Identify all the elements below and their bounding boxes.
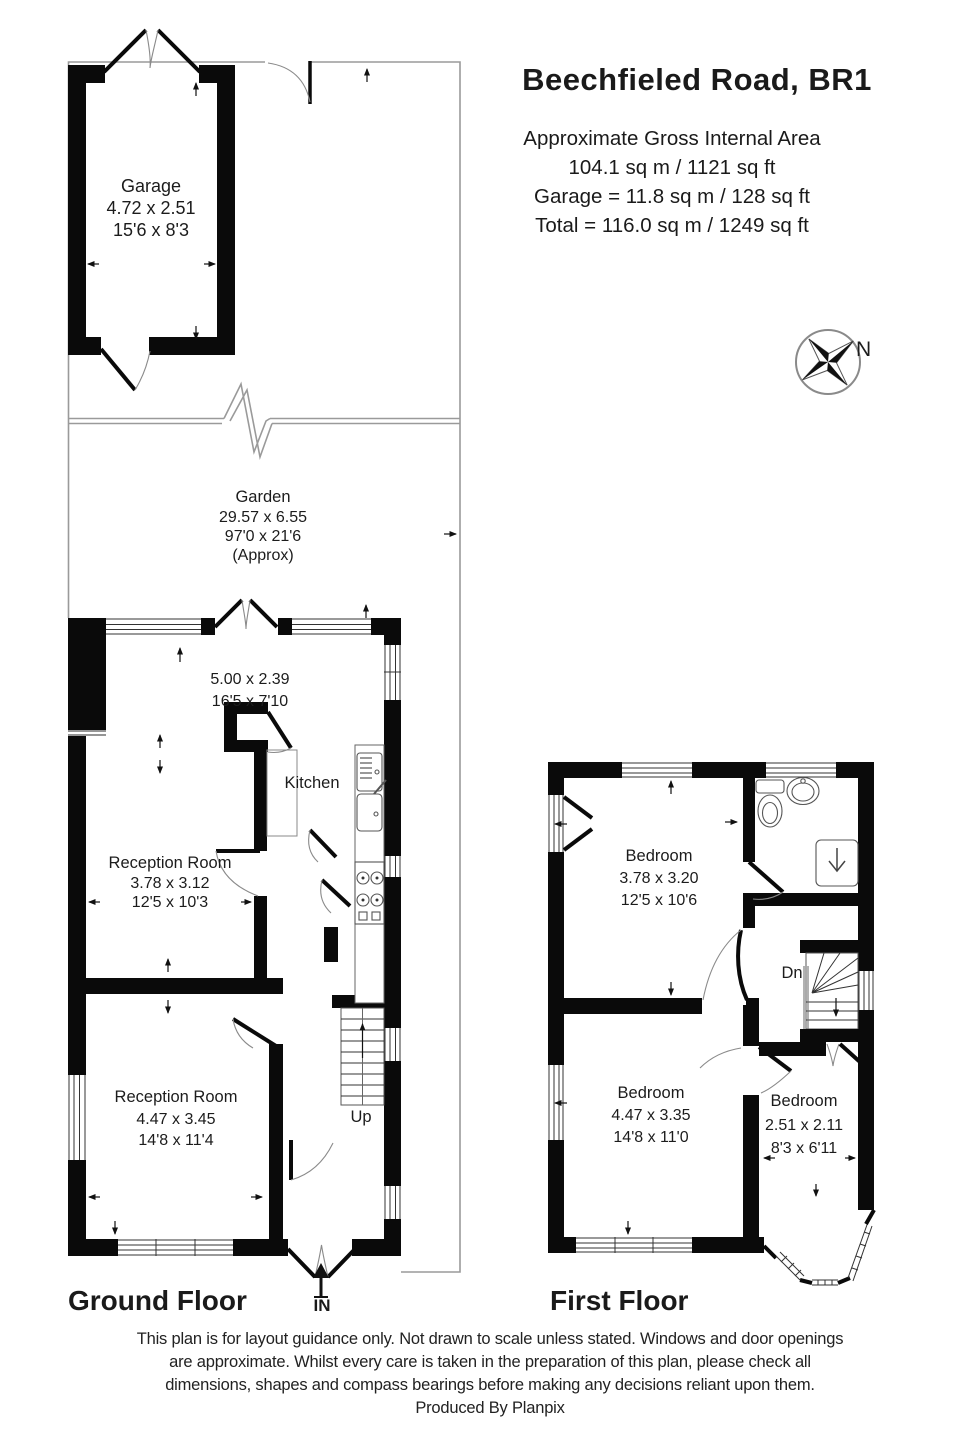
bedroom3-label: Bedroom: [771, 1092, 838, 1110]
disclaimer: This plan is for layout guidance only. N…: [0, 1328, 980, 1420]
rear-window-right: [292, 618, 371, 635]
toilet: [756, 780, 784, 827]
garage-door: [104, 30, 200, 72]
compass: N: [796, 330, 871, 394]
bedroom3-bay-window: [764, 1210, 874, 1285]
garden-label: Garden: [235, 488, 290, 506]
shower: [816, 840, 858, 886]
reception2-dim-imperial: 14'8 x 11'4: [138, 1132, 213, 1149]
garden-break-line: [68, 384, 460, 457]
patio-doors: [215, 600, 277, 629]
bedroom2-front-window: [576, 1237, 692, 1253]
compass-north-label: N: [856, 338, 871, 361]
bedroom1-side-window: [548, 795, 592, 852]
kitchen-lobby-door: [309, 830, 336, 862]
kitchen-hob: [355, 862, 384, 924]
garden-gate: [268, 61, 310, 104]
entrance-in-arrow: [313, 1263, 329, 1297]
basin: [787, 778, 819, 805]
kitchen-unit: [267, 750, 297, 836]
entrance-in-label: IN: [306, 1296, 338, 1316]
bedroom3-dim-imperial: 8'3 x 6'11: [771, 1140, 837, 1157]
bedroom3-corner-window: [826, 1042, 860, 1066]
kitchen-side-window: [384, 645, 401, 700]
area-line: Approximate Gross Internal Area: [412, 124, 932, 153]
reception2-side-window: [68, 1075, 86, 1160]
hall-side-window-upper: [384, 1028, 401, 1061]
lobby-door: [321, 880, 350, 913]
area-line: Total = 116.0 sq m / 1249 sq ft: [412, 211, 932, 240]
ground-floor-label: Ground Floor: [68, 1285, 247, 1317]
rear-window-left: [106, 618, 201, 635]
bedroom3-dim-metric: 2.51 x 2.11: [765, 1117, 843, 1134]
bedroom2-door: [700, 1048, 741, 1068]
stairs-up-label: Up: [350, 1108, 371, 1126]
garden-approx-note: (Approx): [232, 547, 293, 564]
garden-dim-metric: 29.57 x 6.55: [219, 509, 307, 526]
kitchen-diner-dim-imperial: 16'5 x 7'10: [212, 693, 288, 710]
hall-side-window-lower: [384, 1186, 401, 1219]
reception2-door: [233, 1019, 276, 1048]
garden-label-block: Garden 29.57 x 6.55 97'0 x 21'6 (Approx): [219, 488, 307, 564]
bedroom1-label: Bedroom: [626, 847, 693, 865]
disclaimer-line: are approximate. Whilst every care is ta…: [0, 1351, 980, 1374]
bedroom2-dim-imperial: 14'8 x 11'0: [613, 1129, 688, 1146]
reception1-dim-imperial: 12'5 x 10'3: [132, 894, 208, 911]
area-line: 104.1 sq m / 1121 sq ft: [412, 153, 932, 182]
reception1-dim-metric: 3.78 x 3.12: [130, 875, 209, 892]
reception2-label: Reception Room: [115, 1088, 238, 1106]
disclaimer-line: This plan is for layout guidance only. N…: [0, 1328, 980, 1351]
bedroom2-dim-metric: 4.47 x 3.35: [611, 1107, 690, 1124]
kitchen-label: Kitchen: [284, 774, 339, 792]
bathroom-window: [766, 762, 836, 778]
garage-dim-metric: 4.72 x 2.51: [106, 198, 195, 218]
landing-side-window: [858, 971, 874, 1010]
disclaimer-line: Produced By Planpix: [0, 1397, 980, 1420]
area-line: Garage = 11.8 sq m / 128 sq ft: [412, 182, 932, 211]
side-window-small: [384, 856, 401, 877]
garden-dim-imperial: 97'0 x 21'6: [225, 528, 301, 545]
bedroom1-door: [703, 930, 747, 1000]
reception1-label: Reception Room: [109, 854, 232, 872]
first-floor-label: First Floor: [550, 1285, 688, 1317]
kitchen-diner-dim-metric: 5.00 x 2.39: [210, 671, 289, 688]
stairs-down-label: Dn: [781, 964, 802, 982]
page-title: Beechfieled Road, BR1: [437, 62, 957, 98]
garage-label: Garage: [121, 176, 181, 196]
reception2-front-window: [118, 1239, 233, 1256]
stairs-up: Up: [341, 1008, 384, 1126]
bedroom1-dim-imperial: 12'5 x 10'6: [621, 892, 697, 909]
floorplan-page: Garage 4.72 x 2.51 15'6 x 8'3 Garden 29.…: [0, 0, 980, 1430]
garage-rear-door: [101, 349, 150, 390]
garage-plan: Garage 4.72 x 2.51 15'6 x 8'3: [68, 30, 235, 390]
front-door: [291, 1140, 333, 1180]
first-floor-plan: Dn Bedroom 3.78 x 3.20 12'5 x 10'6 Bedro…: [548, 762, 874, 1285]
reception2-dim-metric: 4.47 x 3.45: [136, 1111, 215, 1128]
area-summary: Approximate Gross Internal Area 104.1 sq…: [412, 124, 932, 240]
bedroom2-label: Bedroom: [618, 1084, 685, 1102]
ground-floor-plan: Up 5.00 x 2.39 16'5 x 7'10 Kitchen Recep…: [68, 600, 401, 1297]
garage-dim-imperial: 15'6 x 8'3: [113, 220, 189, 240]
bedroom1-dim-metric: 3.78 x 3.20: [619, 870, 698, 887]
bedroom1-rear-window: [622, 762, 692, 778]
disclaimer-line: dimensions, shapes and compass bearings …: [0, 1374, 980, 1397]
